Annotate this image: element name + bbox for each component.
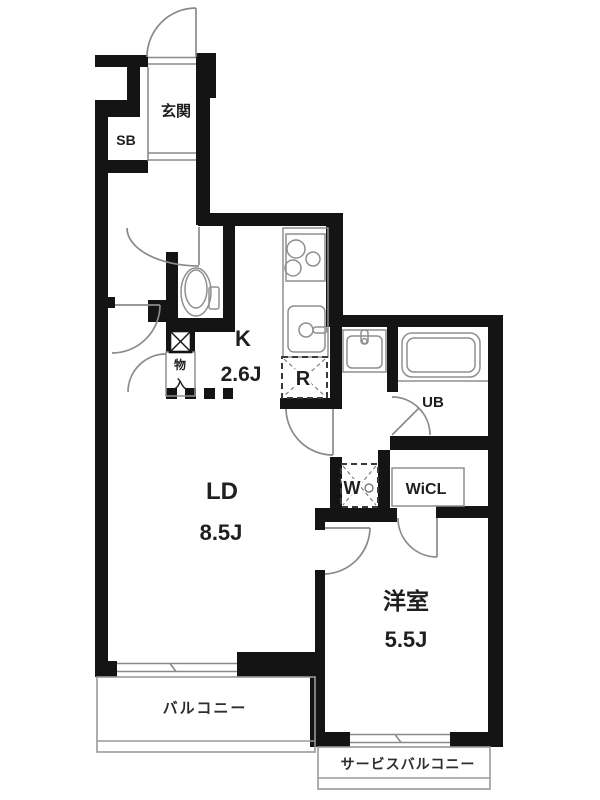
wall-washroom-top [333,315,503,327]
storage-door-arc [128,354,166,392]
wall-right-outer [488,315,503,747]
wall-wicl-bottom [436,506,488,518]
room-door-arc [325,528,370,574]
wall [330,327,342,409]
wall-washroom-bottom [315,508,397,522]
wall-door-stub [148,300,166,322]
toilet-bowl-icon [185,270,207,308]
room-label-entrance: 玄関 [161,102,191,120]
wall-wicl-left [378,450,390,508]
label-balcony: バルコニー [163,700,248,717]
label-storage-char1: 物 [174,357,186,372]
room-label-ld: LD [206,478,238,505]
room-size-western: 5.5J [385,627,428,652]
wall [95,661,117,677]
washroom-door-arc [286,409,333,455]
label-washer: W [344,478,361,498]
washer-faucet-icon [365,484,373,492]
room-label-shoebox: SB [116,132,135,148]
wall-left-outer [95,100,108,677]
wall-kitchen-top [198,213,340,226]
wall-ub-divider [387,327,398,392]
bathtub-inner [407,338,475,372]
label-service-balcony: サービスバルコニー [341,756,476,772]
room-size-ld: 8.5J [200,520,243,545]
bath-door-leaf [392,408,419,435]
room-label-western: 洋室 [383,588,429,614]
label-refrigerator: R [296,368,311,390]
room-label-unitbath: UB [422,394,444,411]
pipe-space [170,331,191,352]
burner-icon [306,252,320,266]
wall-door-stub [105,297,115,308]
label-storage-char2: 入 [174,377,186,391]
wall [315,520,325,530]
floor-plan: 玄関 SB K 2.6J R LD 8.5J UB W WiCL 洋室 5.5J… [0,0,600,800]
entrance-door-arc [147,8,196,57]
bathtub [402,333,480,377]
ld-window-tick [170,664,176,672]
room-label-wicl: WiCL [406,481,447,498]
burner-icon [287,240,305,258]
wall-ld-room-divider [315,570,325,662]
burner-icon [285,260,301,276]
wicl-door-arc [398,518,437,557]
faucet-icon [299,323,313,337]
wall-entry-right [196,53,210,225]
floorplan-page: 玄関 SB K 2.6J R LD 8.5J UB W WiCL 洋室 5.5J… [0,0,600,800]
wall-under-fridge [280,398,340,409]
wall-ub-bottom [390,436,488,450]
room-label-kitchen: K [235,326,251,351]
washbasin-bowl [347,336,382,368]
wall-room-bottom [310,732,350,747]
wall-below-sb [105,160,148,173]
room-size-kitchen: 2.6J [221,363,262,386]
washbasin-faucet-icon [362,339,367,344]
wall-toilet-right [223,226,235,332]
wall-room-bottom [450,732,503,747]
balconies [97,677,490,789]
kitchen-sink [288,306,325,352]
toilet-door-arc [127,228,199,266]
room-window-tick [395,735,401,743]
wall [95,55,148,67]
